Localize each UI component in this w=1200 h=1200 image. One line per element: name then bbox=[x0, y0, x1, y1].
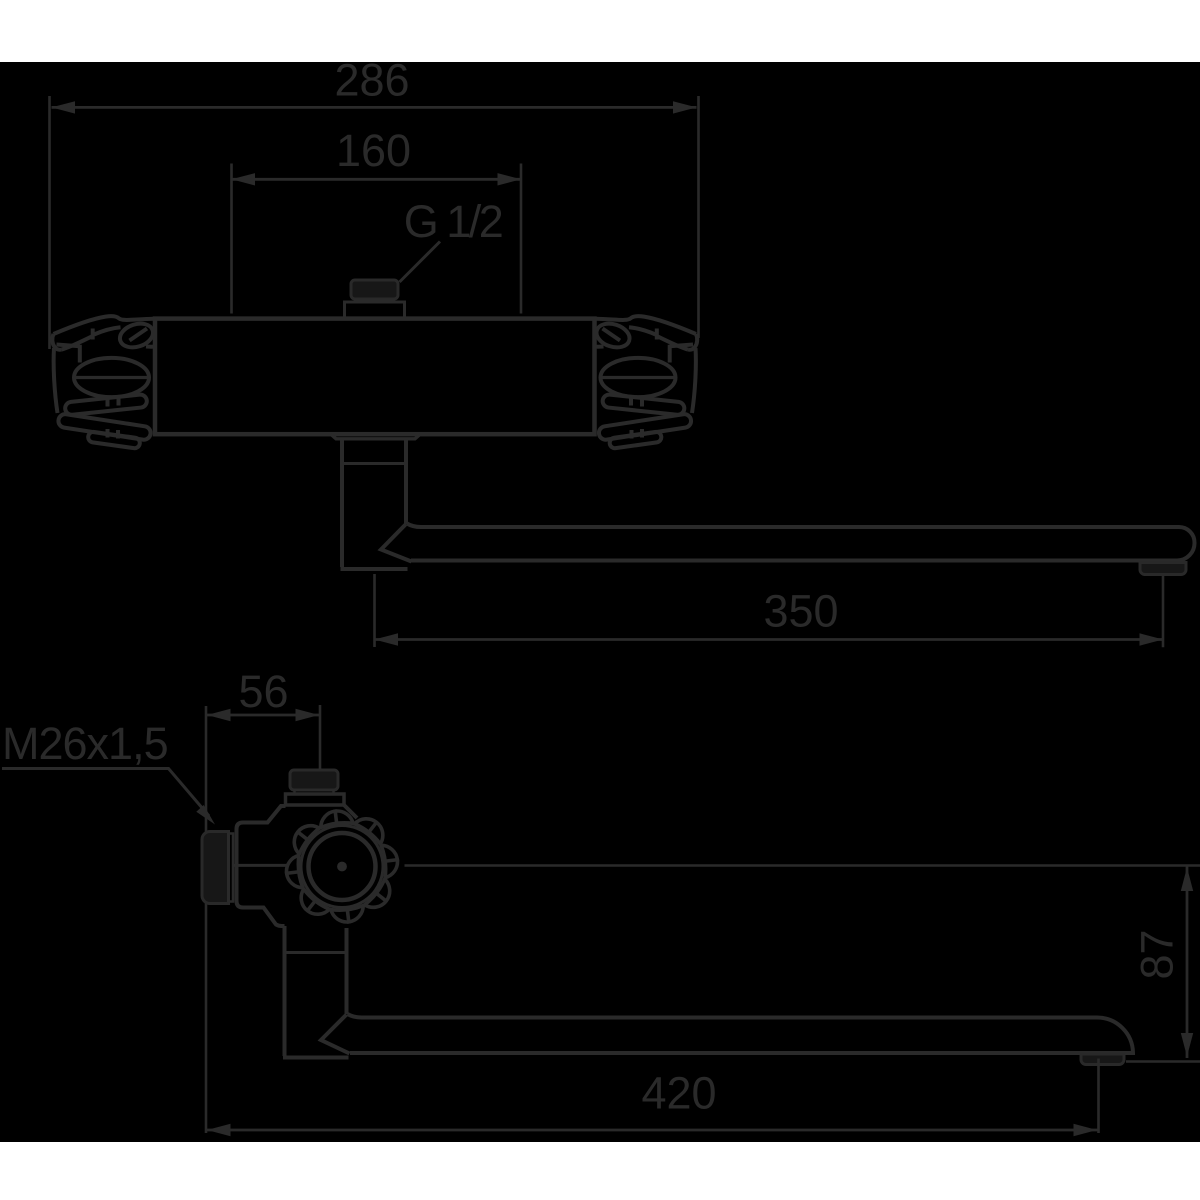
svg-text:56: 56 bbox=[238, 666, 288, 717]
svg-text:160: 160 bbox=[336, 125, 411, 176]
svg-text:286: 286 bbox=[334, 55, 409, 106]
svg-text:420: 420 bbox=[641, 1068, 716, 1119]
svg-text:350: 350 bbox=[763, 586, 838, 637]
svg-text:G 1/2: G 1/2 bbox=[404, 196, 502, 247]
svg-text:87: 87 bbox=[1132, 929, 1183, 979]
svg-text:M26x1,5: M26x1,5 bbox=[2, 718, 168, 769]
